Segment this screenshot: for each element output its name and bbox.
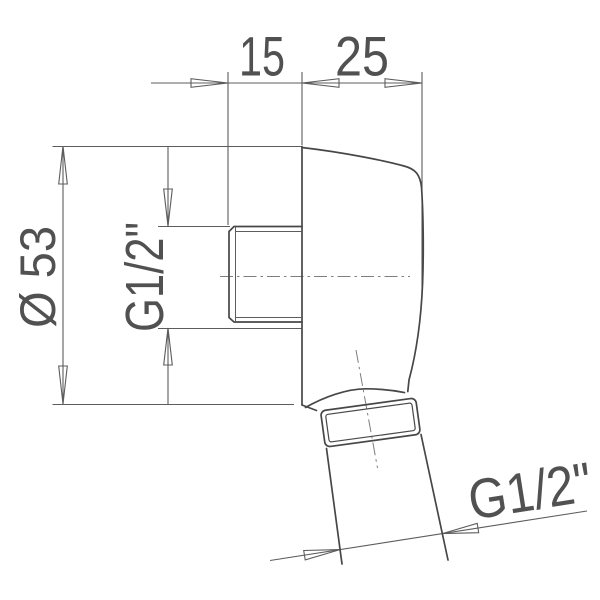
dim-label-wall-thread-g12: G1/2" (115, 222, 175, 332)
dim-label-15: 15 (239, 25, 285, 88)
wall-thread-root-lines (236, 227, 303, 323)
outlet-collar (320, 398, 420, 447)
dim-label-diameter-53: Ø 53 (10, 226, 66, 328)
body-top-right-profile (302, 148, 423, 392)
technical-drawing-page: 15 25 Ø 53 G1/2" G1/2" (0, 0, 600, 600)
outlet-shoulder-dome (306, 389, 405, 408)
dim-label-outlet-thread-g12: G1/2" (464, 450, 596, 532)
shower-wall-elbow-drawing: 15 25 Ø 53 G1/2" G1/2" (0, 0, 600, 600)
outlet-tube-edges (327, 435, 449, 565)
body-outline (229, 147, 448, 565)
wall-thread-profile (229, 227, 302, 323)
dim-label-25: 25 (335, 25, 389, 88)
collar-outer-edge (320, 398, 420, 447)
